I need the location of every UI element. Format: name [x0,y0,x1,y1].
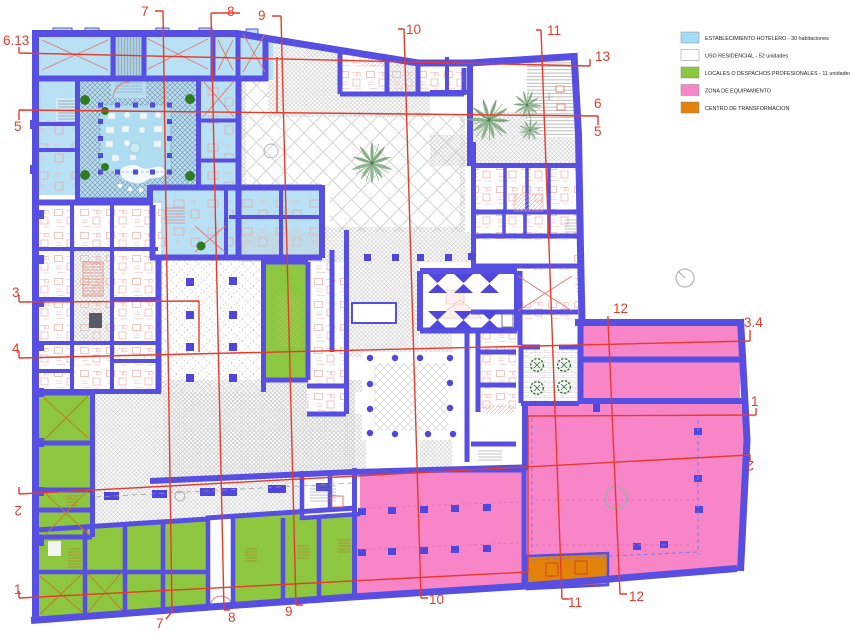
svg-text:5: 5 [594,124,602,139]
svg-text:9: 9 [258,8,266,23]
svg-text:3: 3 [12,285,20,300]
svg-text:13: 13 [595,49,610,64]
svg-text:LOCALES O DESPACHOS PROFESIONA: LOCALES O DESPACHOS PROFESIONALES - 11 u… [705,71,850,77]
svg-text:1: 1 [14,582,22,597]
svg-text:10: 10 [406,22,421,37]
svg-text:11: 11 [568,595,582,610]
svg-text:3.4: 3.4 [744,315,763,330]
svg-text:10: 10 [429,592,444,607]
svg-text:8: 8 [228,610,236,625]
svg-text:7: 7 [156,616,164,631]
svg-text:11: 11 [547,23,561,38]
svg-text:USO RESIDENCIAL - 52 unidades: USO RESIDENCIAL - 52 unidades [705,54,788,60]
svg-text:12: 12 [629,589,644,604]
svg-text:9: 9 [285,604,293,619]
svg-text:7: 7 [141,4,149,19]
svg-text:6.13: 6.13 [3,33,29,48]
svg-text:2: 2 [14,503,22,518]
svg-text:CENTRO DE TRANSFORMACION: CENTRO DE TRANSFORMACION [705,106,789,112]
svg-text:ESTABLECIMIENTO HOTELERO - 30: ESTABLECIMIENTO HOTELERO - 30 habitacion… [705,36,829,42]
svg-text:8: 8 [227,4,235,19]
svg-text:4: 4 [12,341,20,356]
svg-text:6: 6 [594,96,602,111]
svg-text:1: 1 [751,394,759,409]
svg-text:12: 12 [613,301,628,316]
svg-text:5: 5 [14,119,22,134]
svg-text:ZONA DE EQUIPAMIENTO: ZONA DE EQUIPAMIENTO [705,89,771,95]
svg-text:2: 2 [746,458,754,473]
